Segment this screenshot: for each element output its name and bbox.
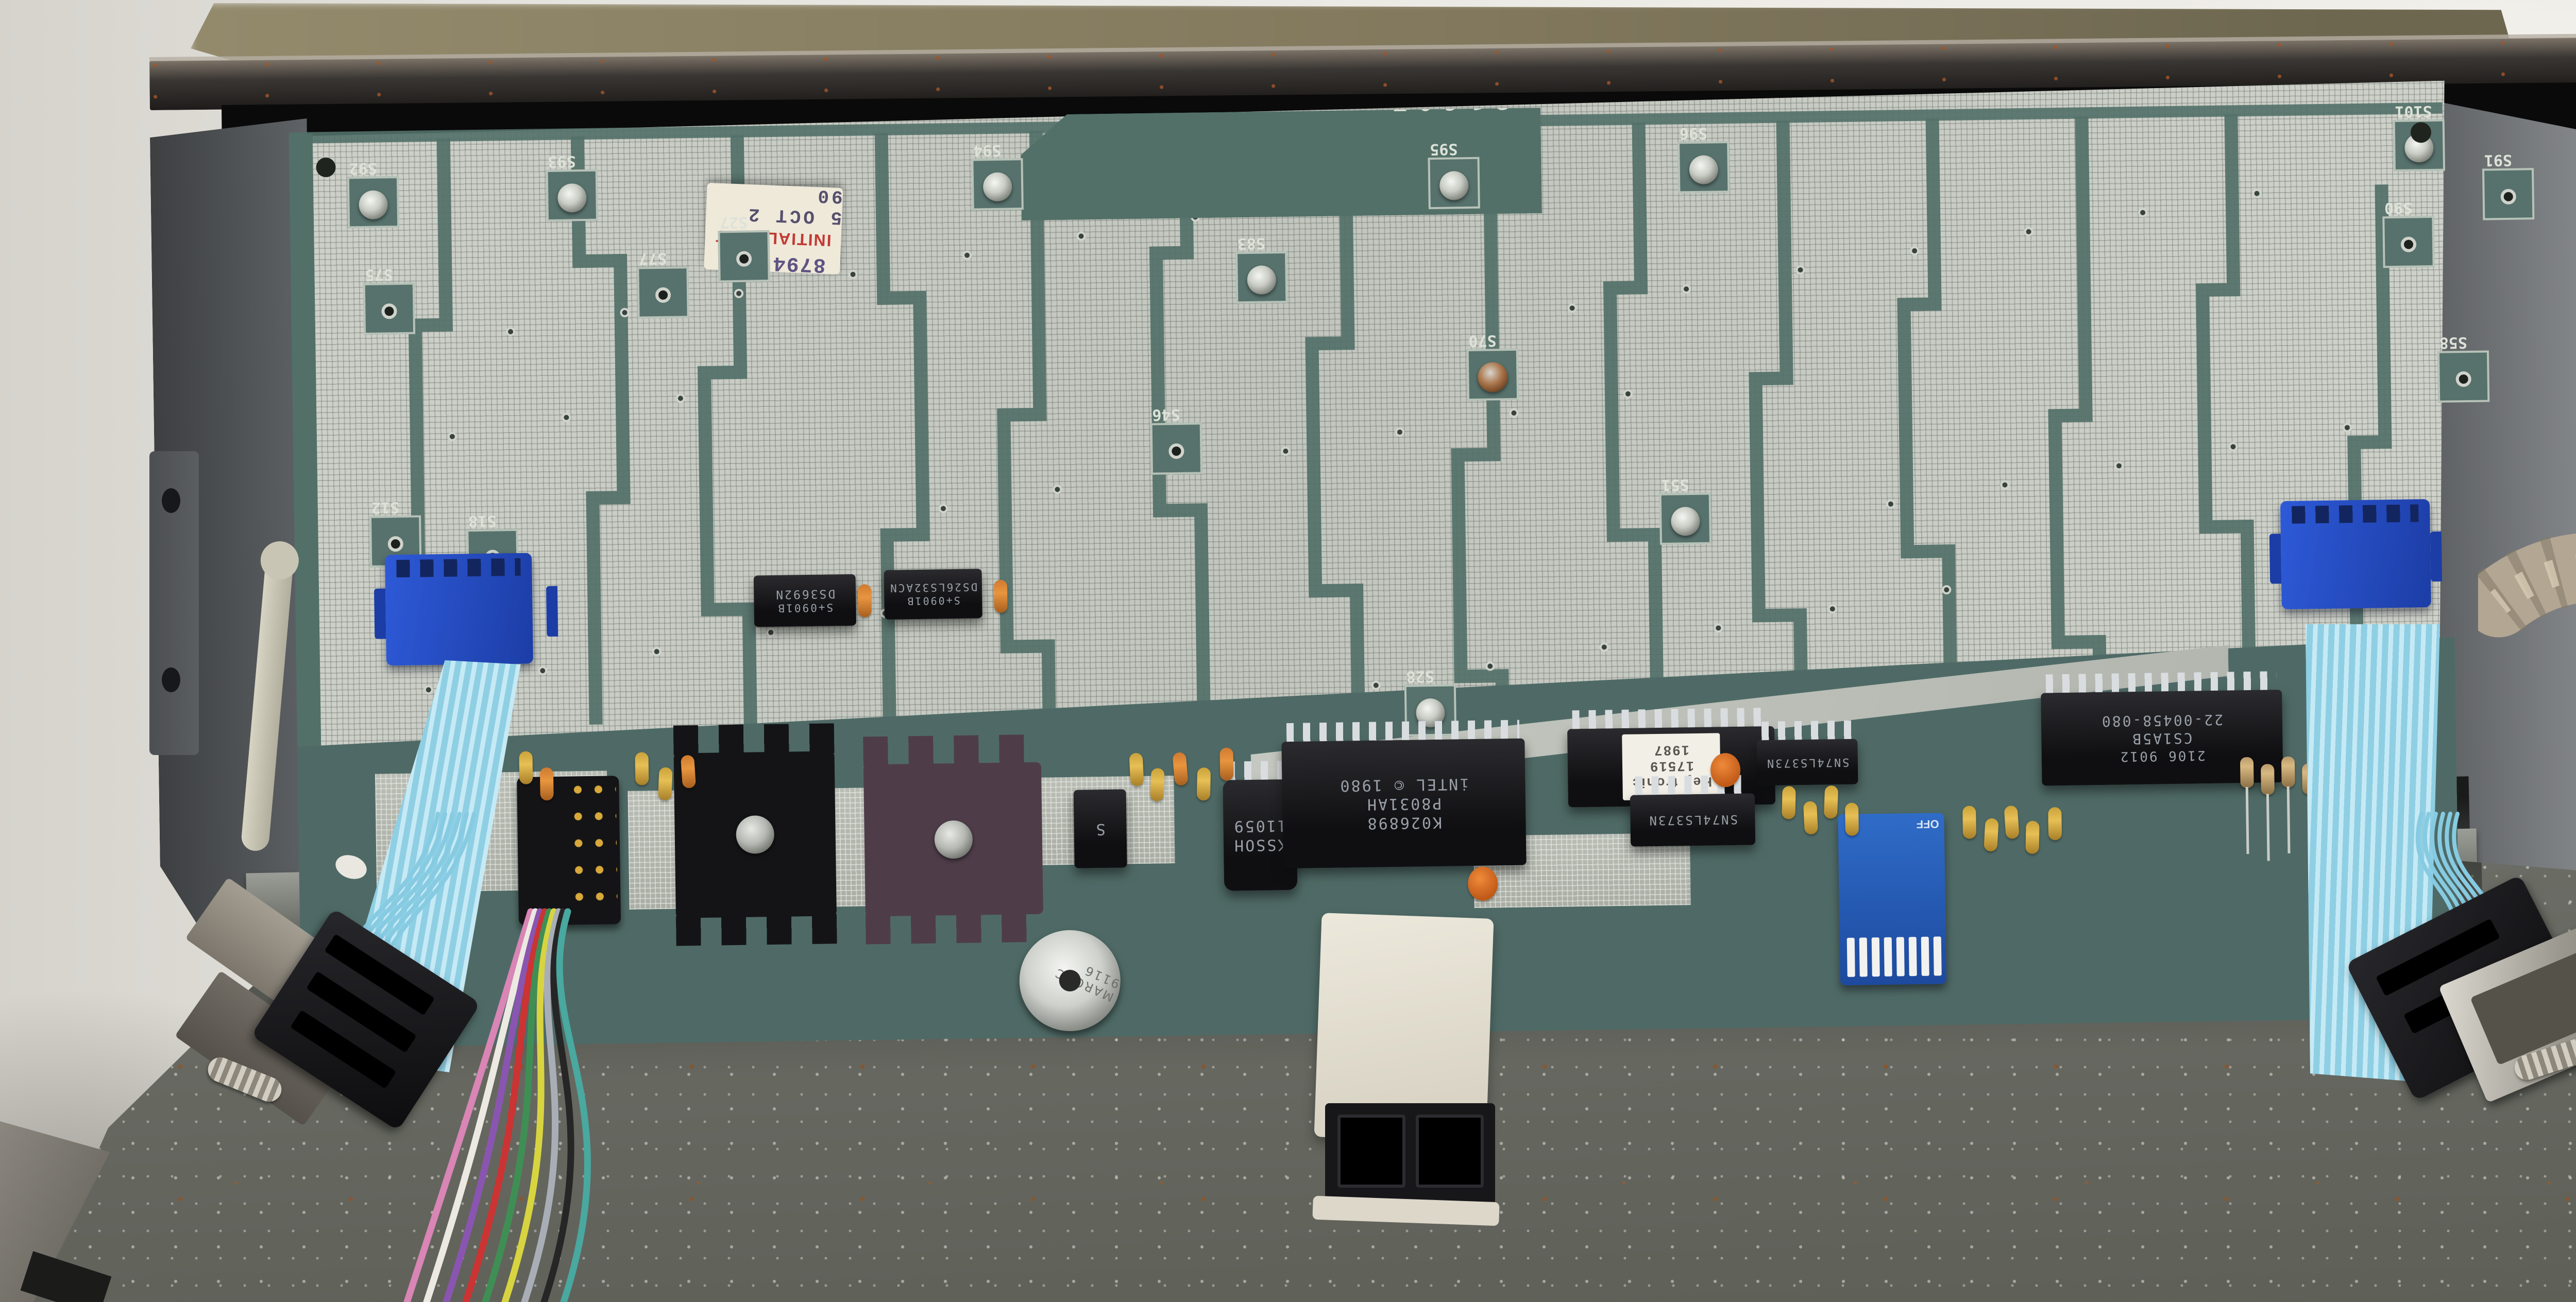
ic-text: S+0901B [906, 594, 961, 607]
clip-socket [1325, 1103, 1495, 1206]
axial-component [1129, 753, 1144, 786]
piezo-disc: MAROBC 9116 [1019, 930, 1121, 1032]
axial-component [1150, 768, 1164, 801]
axial-component [519, 751, 533, 784]
solder-pad-s91: S91 [2482, 168, 2534, 220]
ic-text: iNTEL © 1980 [1338, 775, 1469, 795]
axial-component [858, 584, 872, 617]
ic-text: K026898 [1366, 813, 1443, 832]
bracket-black [673, 751, 836, 918]
ic-line-driver: DS3692N S+0901B [754, 574, 856, 627]
ic-text: 2106 9012 [2119, 747, 2206, 764]
standing-resistor [2261, 764, 2275, 795]
label-text: 17519 [1649, 759, 1694, 775]
ic-text: KSSOH [1233, 835, 1287, 854]
ic-text: SN74LS373N [1766, 755, 1850, 769]
ic-latch-a: SN74LS373N [1630, 793, 1755, 846]
axial-component [1845, 803, 1859, 836]
screw-head [736, 815, 774, 854]
axial-component [540, 767, 554, 800]
ic-latch-b: SN74LS373N [1756, 739, 1858, 786]
axial-component [994, 580, 1008, 613]
dip-sliders [1847, 936, 1942, 977]
ic-small: S [1074, 789, 1127, 868]
label-text: 1987 [1653, 743, 1689, 759]
axial-component [2048, 807, 2062, 840]
idc-connector-left [385, 553, 533, 665]
axial-component [1984, 818, 1999, 851]
axial-component [681, 755, 696, 789]
ic-text: P8031AH [1366, 794, 1442, 813]
dip-off-label: OFF [1916, 817, 1939, 831]
ic-text: DS3692N [774, 587, 835, 601]
ic-line-receiver: DS26LS32ACN S+0901B [884, 569, 982, 620]
axial-component [658, 767, 672, 800]
ic-text: 11059 [1233, 816, 1287, 835]
via-hole [2455, 371, 2471, 386]
axial-component [1824, 785, 1838, 819]
ic-text: SN74LS373N [1648, 812, 1738, 828]
axial-component [1962, 806, 1976, 838]
bracket-purple [863, 762, 1043, 917]
photo-opened-keyboard: 21607-2 key tronic® 8794 RWP INITIAL TES… [0, 0, 2576, 1302]
screw-head [934, 820, 973, 859]
tantalum-capacitor [1468, 866, 1498, 901]
axial-component [1803, 801, 1818, 834]
axial-component [635, 752, 649, 785]
axial-component [2004, 806, 2020, 840]
standing-resistor [2240, 757, 2254, 788]
axial-component [2025, 821, 2039, 854]
axial-component [1197, 767, 1211, 801]
ic-intel-mcu: iNTEL © 1980 P8031AH K026898 [1281, 739, 1526, 869]
ic-text: DS26LS32ACN [889, 580, 977, 594]
metal-flange-left [149, 451, 199, 755]
idc-connector-right [2280, 499, 2431, 609]
ic-text: CS1A5B [2131, 730, 2193, 748]
axial-component [1172, 752, 1188, 786]
dip-switch: OFF [1838, 813, 1946, 985]
ic-text: S+0901B [777, 601, 834, 614]
axial-component [1219, 748, 1233, 781]
standing-resistor [2281, 757, 2295, 787]
ic-text: 22-00458-080 [2100, 711, 2224, 730]
pad-label: S91 [2484, 151, 2513, 169]
via-hole [2501, 189, 2516, 204]
axial-component [1782, 786, 1795, 819]
